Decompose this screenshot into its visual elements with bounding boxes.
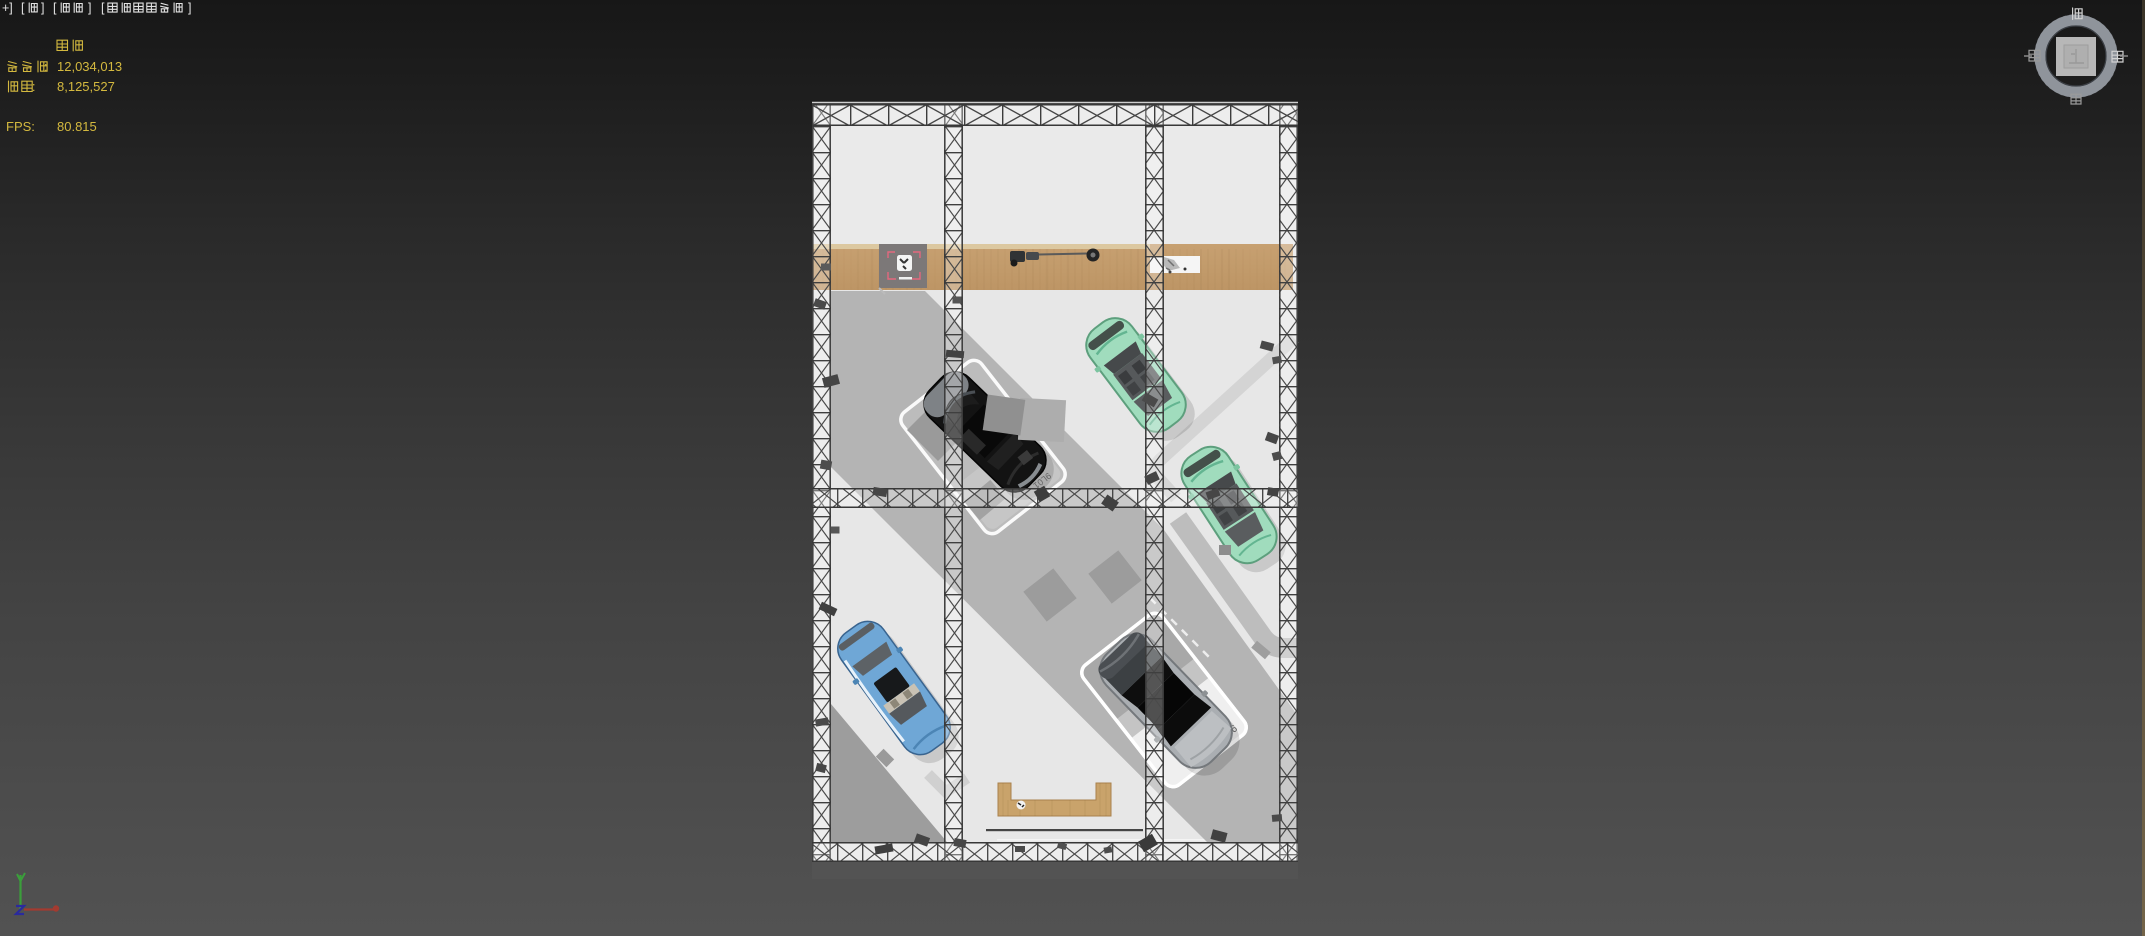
svg-text::: : [32,80,35,94]
svg-text:8,125,527: 8,125,527 [57,79,115,94]
svg-text:FPS:: FPS: [6,119,35,134]
svg-text:12,034,013: 12,034,013 [57,59,122,74]
svg-text:80.815: 80.815 [57,119,97,134]
svg-text::: : [44,60,47,74]
